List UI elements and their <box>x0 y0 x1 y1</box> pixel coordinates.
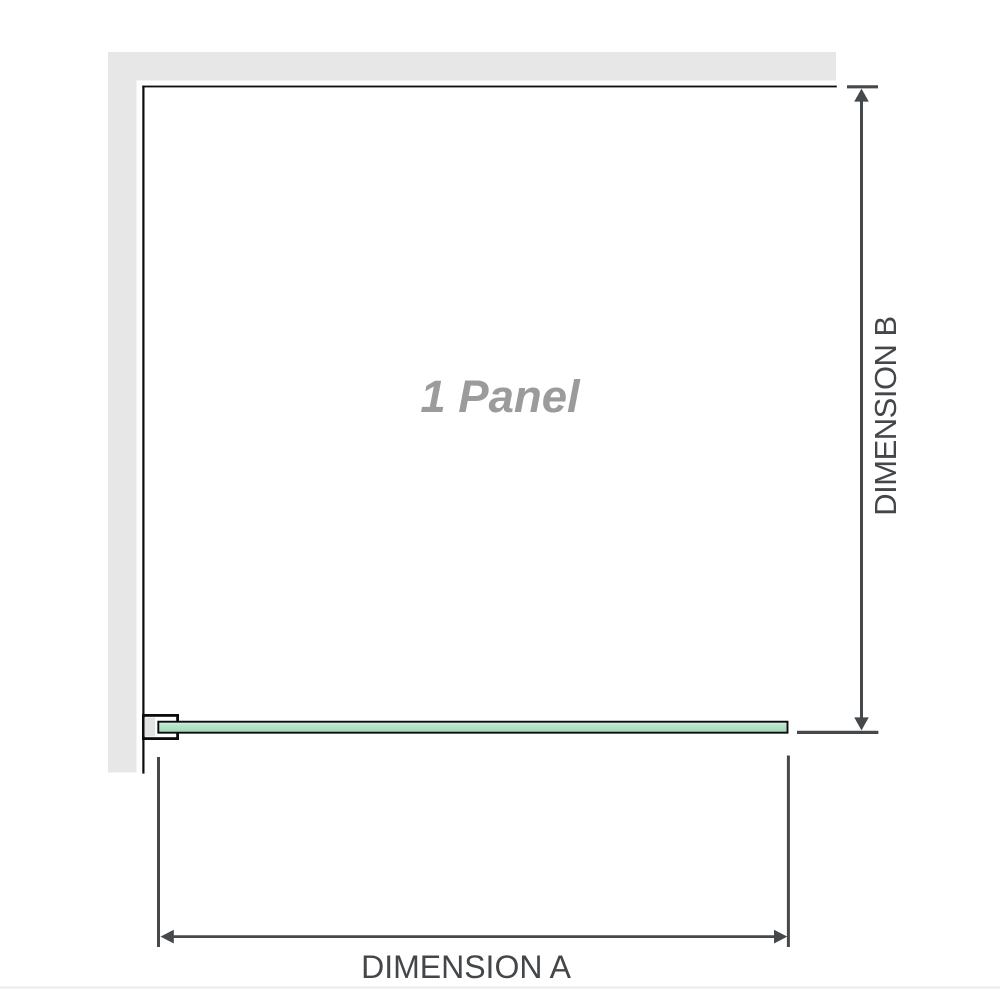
svg-text:DIMENSION A: DIMENSION A <box>361 949 571 985</box>
svg-text:1 Panel: 1 Panel <box>420 371 581 422</box>
svg-text:DIMENSION B: DIMENSION B <box>868 316 903 515</box>
